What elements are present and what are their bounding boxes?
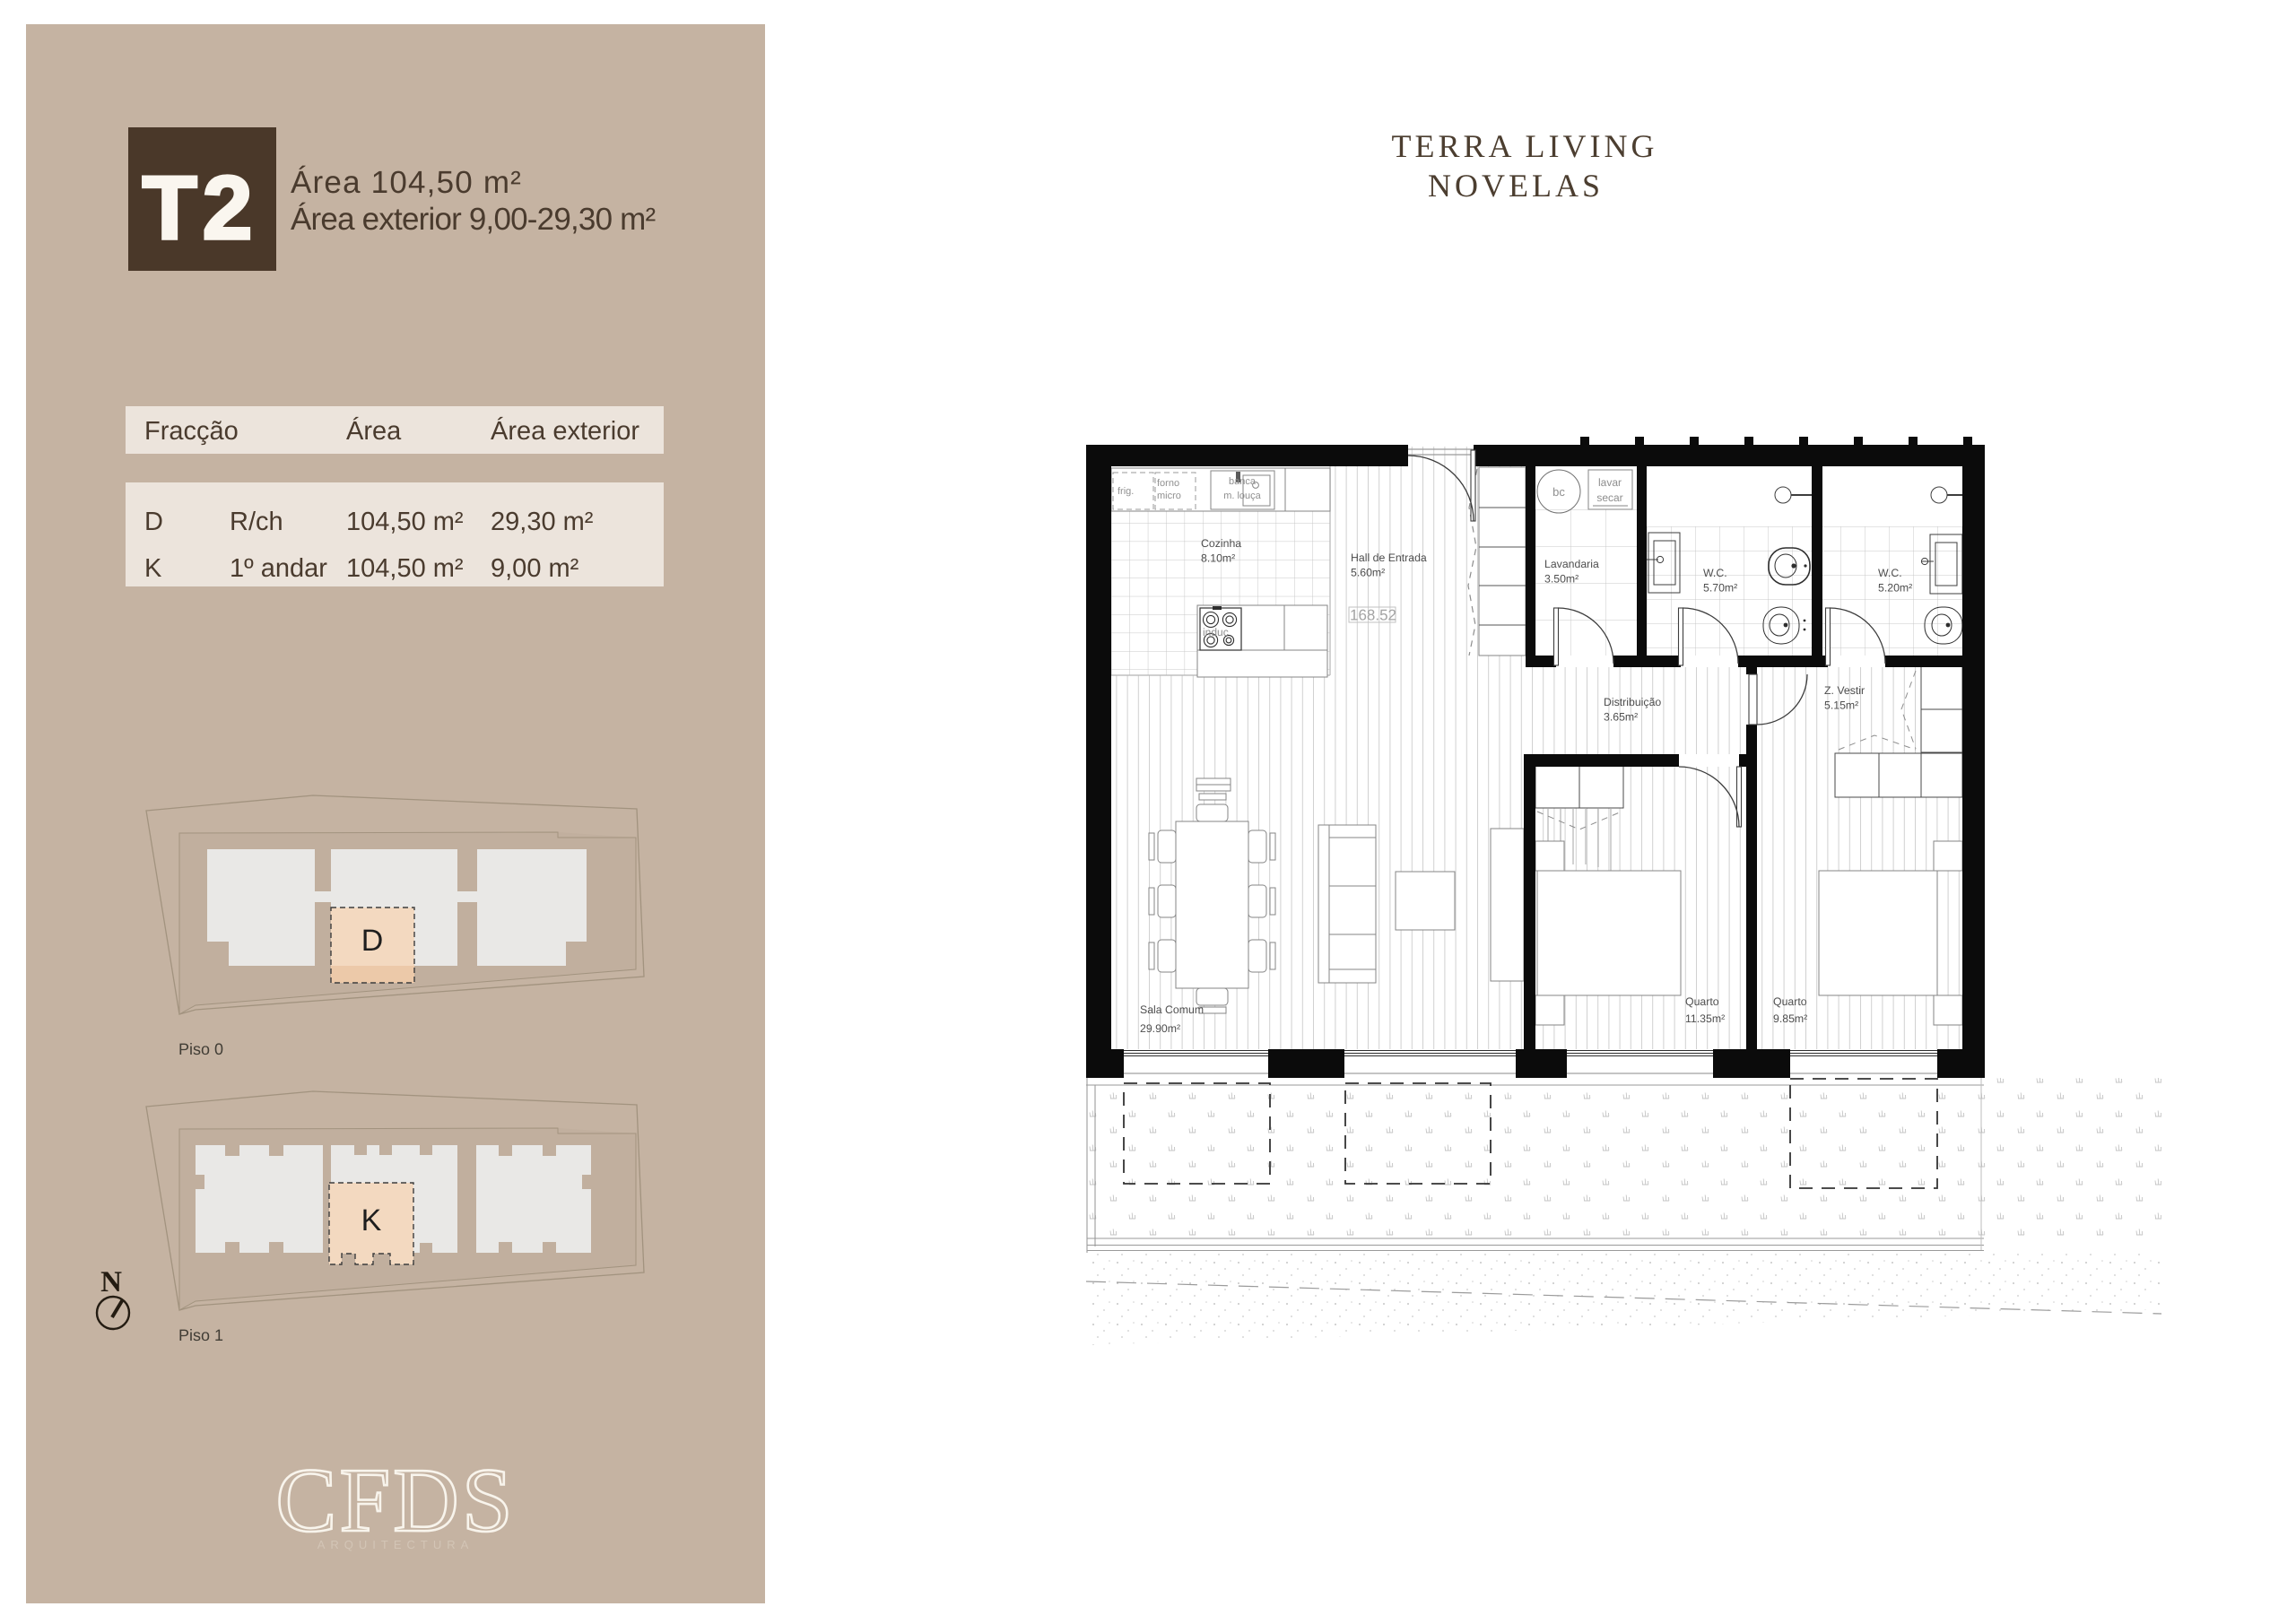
svg-text:5.60m²: 5.60m²: [1351, 567, 1385, 579]
svg-text:CFDS: CFDS: [275, 1450, 515, 1551]
svg-text:forno: forno: [1157, 478, 1179, 489]
svg-text:W.C.: W.C.: [1703, 567, 1727, 579]
svg-text:8.10m²: 8.10m²: [1201, 552, 1235, 565]
svg-text:104,50 m²: 104,50 m²: [346, 554, 464, 583]
svg-text:frig.: frig.: [1118, 486, 1134, 497]
svg-text:ARQUITECTURA: ARQUITECTURA: [317, 1538, 474, 1551]
svg-text:9,00 m²: 9,00 m²: [491, 554, 579, 583]
svg-text:induc: induc: [1203, 626, 1229, 638]
svg-text:Área 104,50 m²: Área 104,50 m²: [291, 165, 522, 200]
svg-text:D: D: [361, 924, 384, 958]
svg-text:5.15m²: 5.15m²: [1824, 699, 1858, 712]
svg-text:Distribuição: Distribuição: [1604, 696, 1661, 708]
svg-text:5.20m²: 5.20m²: [1878, 582, 1912, 595]
svg-text:Lavandaria: Lavandaria: [1544, 558, 1599, 570]
svg-text:29.90m²: 29.90m²: [1140, 1022, 1180, 1035]
svg-text:TERRA LIVING: TERRA LIVING: [1392, 128, 1658, 164]
svg-text:5.70m²: 5.70m²: [1703, 582, 1737, 595]
svg-text:Área exterior: Área exterior: [491, 416, 639, 446]
svg-text:168.52: 168.52: [1350, 607, 1396, 624]
svg-text:104,50 m²: 104,50 m²: [346, 508, 464, 536]
svg-text:Área exterior 9,00-29,30 m²: Área exterior 9,00-29,30 m²: [291, 202, 656, 237]
svg-text:N: N: [100, 1266, 122, 1298]
svg-text:3.65m²: 3.65m²: [1604, 711, 1638, 724]
svg-text:lavar: lavar: [1598, 476, 1622, 489]
svg-text:m. louça: m. louça: [1223, 491, 1261, 501]
svg-text:9.85m²: 9.85m²: [1773, 1012, 1807, 1025]
svg-text:R/ch: R/ch: [230, 508, 283, 536]
svg-text:Piso 0: Piso 0: [178, 1040, 223, 1058]
svg-text:Piso 1: Piso 1: [178, 1326, 223, 1344]
svg-text:NOVELAS: NOVELAS: [1428, 168, 1604, 204]
svg-text:Fracção: Fracção: [144, 417, 239, 446]
svg-text:W.C.: W.C.: [1878, 567, 1902, 579]
svg-text:Área: Área: [346, 416, 402, 446]
svg-text:K: K: [144, 554, 162, 583]
svg-text:K: K: [361, 1203, 382, 1238]
svg-text:11.35m²: 11.35m²: [1685, 1012, 1725, 1025]
svg-text:Hall de Entrada: Hall de Entrada: [1351, 551, 1427, 564]
svg-text:T2: T2: [143, 158, 258, 258]
svg-text:Z. Vestir: Z. Vestir: [1824, 684, 1865, 697]
svg-text:banca: banca: [1229, 476, 1257, 487]
svg-text:1º andar: 1º andar: [230, 554, 327, 583]
svg-text:secar: secar: [1596, 491, 1622, 504]
svg-text:Quarto: Quarto: [1685, 995, 1719, 1008]
svg-text:bc: bc: [1552, 485, 1565, 499]
svg-text:Cozinha: Cozinha: [1201, 537, 1241, 550]
svg-text:D: D: [144, 508, 163, 536]
svg-text:Sala Comum: Sala Comum: [1140, 1003, 1204, 1016]
svg-text:Quarto: Quarto: [1773, 995, 1807, 1008]
svg-text:micro: micro: [1157, 491, 1181, 501]
svg-text:3.50m²: 3.50m²: [1544, 573, 1578, 586]
svg-text:29,30 m²: 29,30 m²: [491, 508, 594, 536]
